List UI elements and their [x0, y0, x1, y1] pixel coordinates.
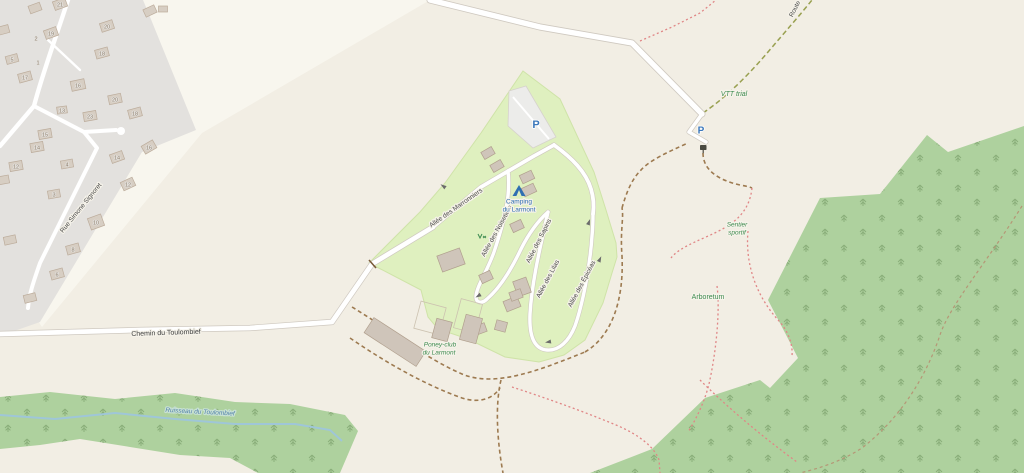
svg-text:21: 21	[57, 2, 63, 8]
poi-label-arboretum: Arboretum	[692, 294, 725, 301]
svg-text:18: 18	[99, 51, 105, 57]
footpath-top	[640, 0, 716, 41]
track-south-exit	[497, 380, 503, 473]
information-board-icon	[700, 145, 707, 153]
path-label-sentier-line1: Sentier	[727, 222, 748, 229]
svg-text:15: 15	[42, 132, 48, 138]
svg-text:12: 12	[125, 182, 131, 188]
poi-label-poney-line1: Poney-club	[424, 342, 457, 349]
svg-text:13: 13	[59, 108, 65, 114]
parking-icon: P	[532, 119, 539, 131]
vtt-trial-path	[703, 0, 812, 113]
road-main-north	[430, 0, 702, 114]
svg-text:3: 3	[52, 192, 55, 198]
svg-text:8: 8	[71, 247, 74, 253]
poi-label-camping-line2: du Larmont	[503, 207, 536, 214]
svg-text:14: 14	[114, 155, 120, 161]
svg-text:1: 1	[36, 60, 39, 66]
svg-text:6: 6	[55, 272, 58, 278]
stream-forest-strip	[0, 392, 358, 473]
svg-text:4: 4	[65, 162, 68, 168]
poi-label-poney-line2: du Larmont	[423, 350, 457, 357]
svg-text:5: 5	[10, 57, 13, 63]
svg-text:12: 12	[13, 164, 19, 170]
path-label-vtt-trial: VTT trial	[721, 91, 748, 98]
street-label-chemin-du-toulombief: Chemin du Toulombief	[131, 329, 201, 338]
map-svg: P P Rue Simone Signoret Chemin du Toulom…	[0, 0, 1024, 473]
svg-text:19: 19	[48, 31, 54, 37]
forest-area	[590, 126, 1024, 473]
path-label-sentier-line2: sportif	[728, 230, 747, 237]
track-to-parking	[622, 143, 688, 208]
svg-text:14: 14	[34, 145, 40, 151]
landuse-layer	[0, 0, 1024, 473]
map-canvas[interactable]: P P Rue Simone Signoret Chemin du Toulom…	[0, 0, 1024, 473]
svg-text:2: 2	[34, 36, 37, 42]
svg-text:23: 23	[87, 114, 93, 120]
street-label-route-partial: Route	[788, 0, 802, 18]
poi-label-camping-line1: Camping	[506, 199, 532, 206]
svg-text:20: 20	[112, 97, 118, 103]
svg-text:16: 16	[146, 145, 152, 151]
track-board-east	[703, 153, 752, 188]
parking-icon: P	[698, 126, 705, 137]
svg-text:18: 18	[132, 111, 138, 117]
svg-text:17: 17	[22, 75, 28, 81]
svg-text:10: 10	[93, 220, 99, 226]
svg-text:16: 16	[75, 83, 81, 89]
svg-text:20: 20	[104, 24, 110, 30]
